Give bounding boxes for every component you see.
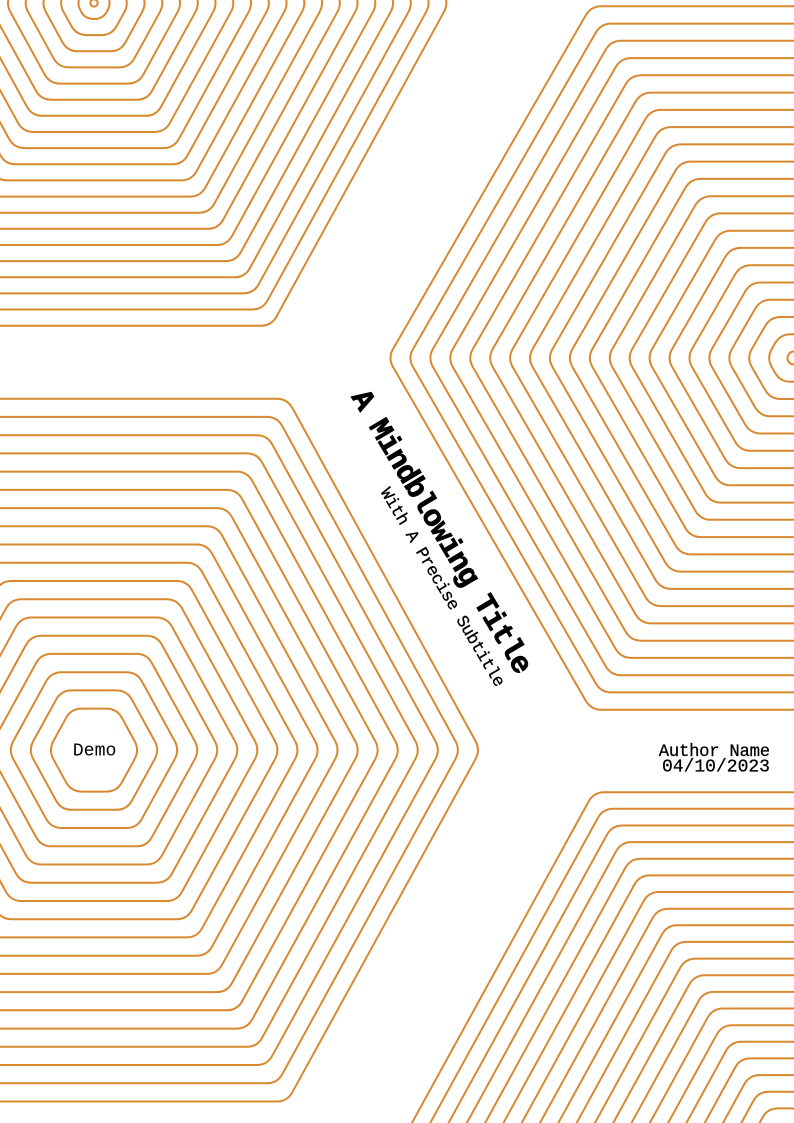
svg-text:Demo: Demo: [73, 742, 117, 762]
svg-text:04/10/2023: 04/10/2023: [662, 757, 770, 777]
